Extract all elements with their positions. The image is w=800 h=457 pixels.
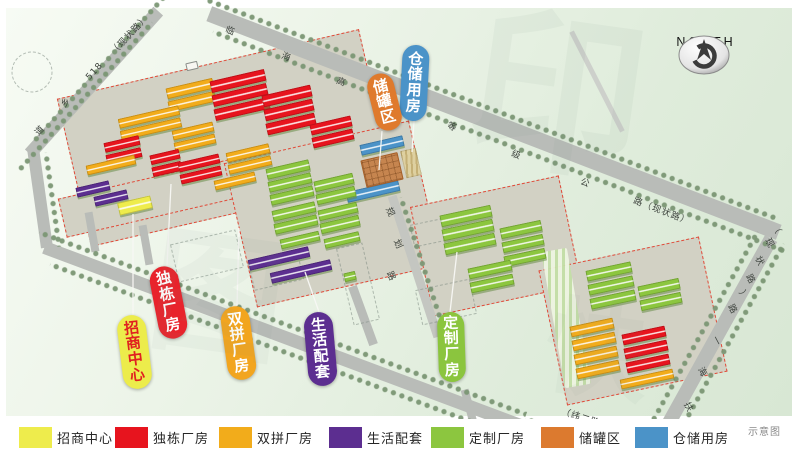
watermark: 图 [141, 221, 293, 373]
legend-label-chuguan: 储罐区 [579, 428, 621, 447]
legend-swatch-dudong [115, 427, 148, 448]
legend-item-chuguan: 储罐区 [541, 427, 621, 448]
legend-label-dudong: 独栋厂房 [153, 428, 209, 447]
legend-label-cangchu: 仓储用房 [673, 428, 729, 447]
legend-swatch-cangchu [635, 427, 668, 448]
legend-swatch-shuangpin [219, 427, 252, 448]
legend-item-zhaoshang: 招商中心 [19, 427, 113, 448]
legend-swatch-dingzhi [431, 427, 464, 448]
legend-item-cangchu: 仓储用房 [635, 427, 729, 448]
legend-label-dingzhi: 定制厂房 [469, 428, 525, 447]
legend-item-shuangpin: 双拼厂房 [219, 427, 313, 448]
watermark: 快 [538, 293, 657, 412]
north-indicator: NORTH [666, 34, 746, 49]
legend-item-dudong: 独栋厂房 [115, 427, 209, 448]
compass-icon [666, 34, 746, 76]
industrial-park-site-plan: 临海高等级公路（现状路）（现状路）518乡道（现状路）路一海扶路（纬二路）规划路… [0, 0, 800, 457]
legend-label-shuangpin: 双拼厂房 [257, 428, 313, 447]
legend-item-dingzhi: 定制厂房 [431, 427, 525, 448]
legend-swatch-shenghuo [329, 427, 362, 448]
schematic-note: 示意图 [748, 423, 781, 438]
watermark: 印 [459, 0, 657, 196]
legend-label-shenghuo: 生活配套 [367, 428, 423, 447]
legend-label-zhaoshang: 招商中心 [57, 428, 113, 447]
legend: 招商中心独栋厂房双拼厂房生活配套定制厂房储罐区仓储用房 示意图 [0, 419, 800, 457]
legend-swatch-zhaoshang [19, 427, 52, 448]
legend-item-shenghuo: 生活配套 [329, 427, 423, 448]
legend-swatch-chuguan [541, 427, 574, 448]
